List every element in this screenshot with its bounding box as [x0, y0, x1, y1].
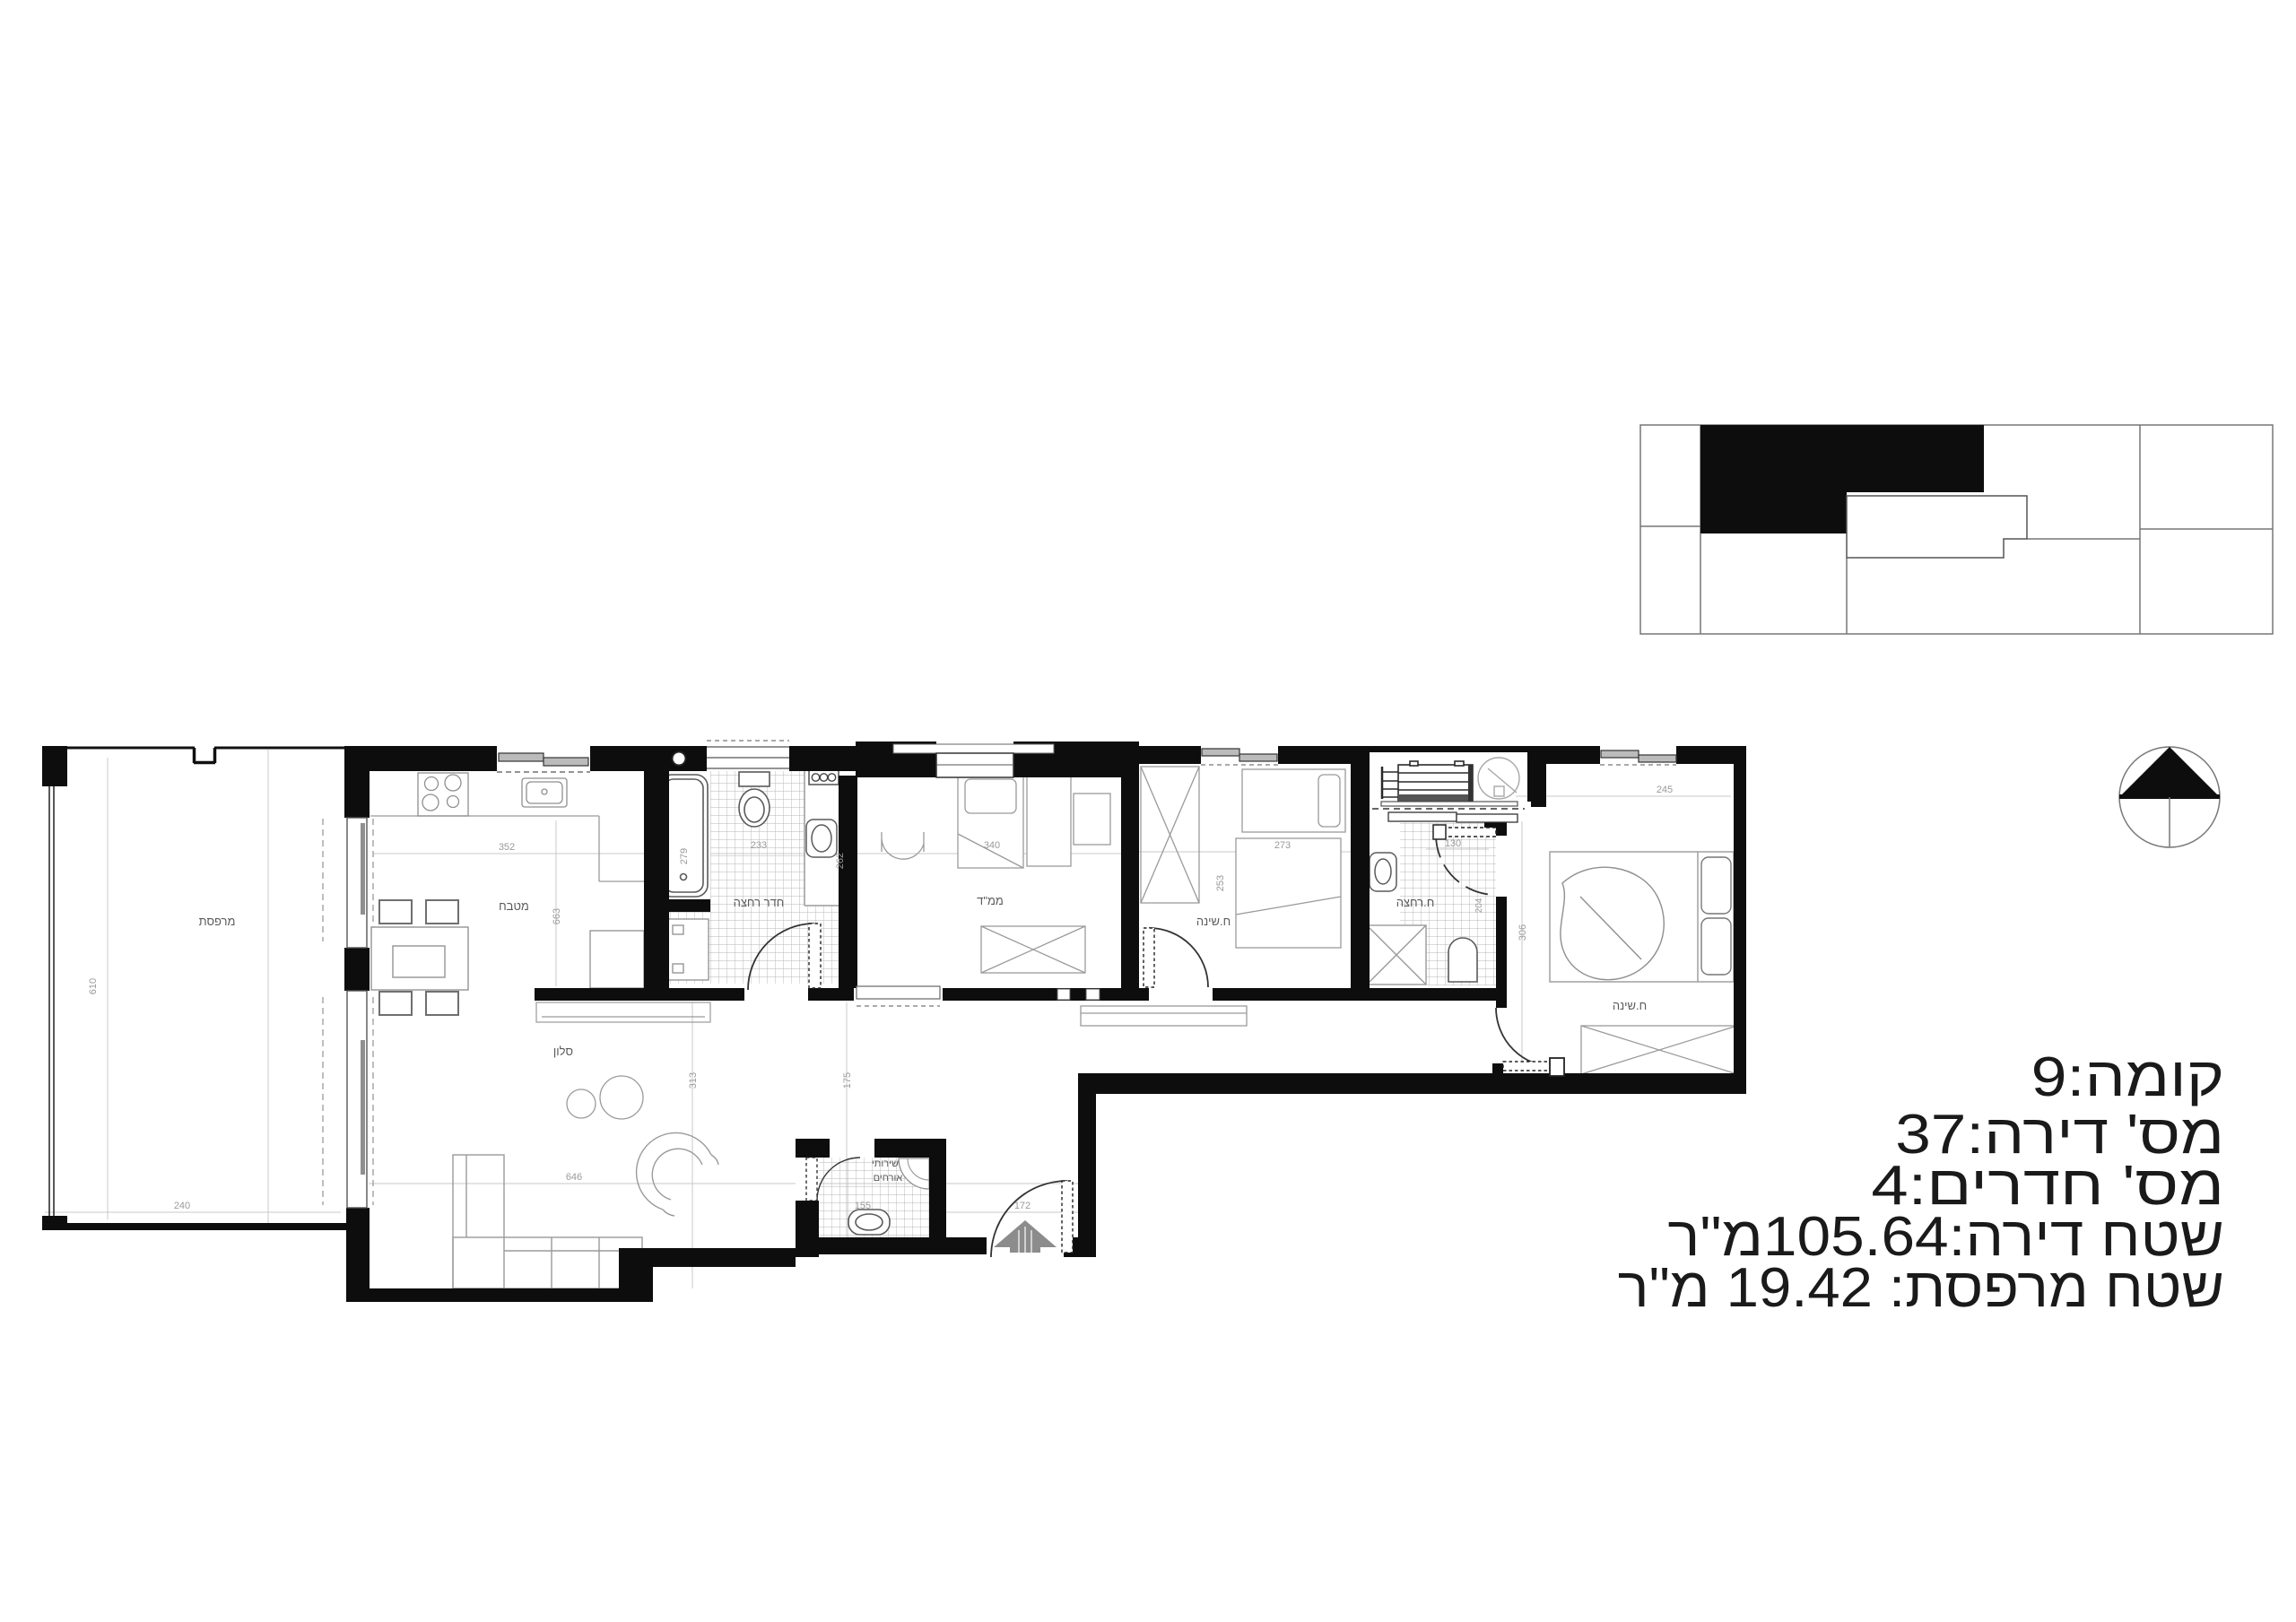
- svg-text:קומה:9: קומה:9: [2031, 1045, 2224, 1107]
- svg-text:610: 610: [88, 978, 99, 994]
- svg-text:233: 233: [751, 840, 767, 851]
- svg-text:172: 172: [1014, 1201, 1031, 1211]
- svg-text:240: 240: [174, 1201, 190, 1211]
- svg-text:313: 313: [688, 1072, 699, 1089]
- svg-text:סלון: סלון: [553, 1045, 573, 1058]
- svg-text:חדר רחצה: חדר רחצה: [734, 896, 785, 909]
- svg-text:מטבח: מטבח: [499, 899, 529, 913]
- svg-text:352: 352: [499, 842, 515, 853]
- svg-text:245: 245: [1657, 785, 1673, 795]
- svg-text:273: 273: [1274, 840, 1291, 851]
- svg-text:מרפסת: מרפסת: [199, 915, 236, 928]
- svg-text:155: 155: [855, 1201, 871, 1211]
- svg-text:130: 130: [1445, 838, 1461, 849]
- svg-text:253: 253: [1215, 875, 1226, 891]
- svg-text:ח.רחצה: ח.רחצה: [1396, 896, 1435, 909]
- svg-text:ח.שינה: ח.שינה: [1196, 915, 1231, 928]
- svg-text:646: 646: [566, 1172, 582, 1183]
- svg-text:ממ"ד: ממ"ד: [977, 894, 1004, 907]
- svg-text:204: 204: [1474, 898, 1484, 913]
- svg-text:663: 663: [552, 908, 562, 924]
- svg-text:שטח מרפסת: 19.42 מ"ר: שטח מרפסת: 19.42 מ"ר: [1618, 1256, 2224, 1318]
- svg-text:306: 306: [1518, 924, 1528, 941]
- svg-text:262: 262: [835, 853, 846, 869]
- svg-text:175: 175: [842, 1072, 853, 1089]
- svg-text:ח.שינה: ח.שינה: [1613, 999, 1647, 1012]
- svg-text:אורחים: אורחים: [874, 1173, 903, 1184]
- svg-text:שירותי: שירותי: [872, 1158, 899, 1169]
- svg-text:279: 279: [679, 848, 690, 864]
- svg-text:340: 340: [984, 840, 1000, 851]
